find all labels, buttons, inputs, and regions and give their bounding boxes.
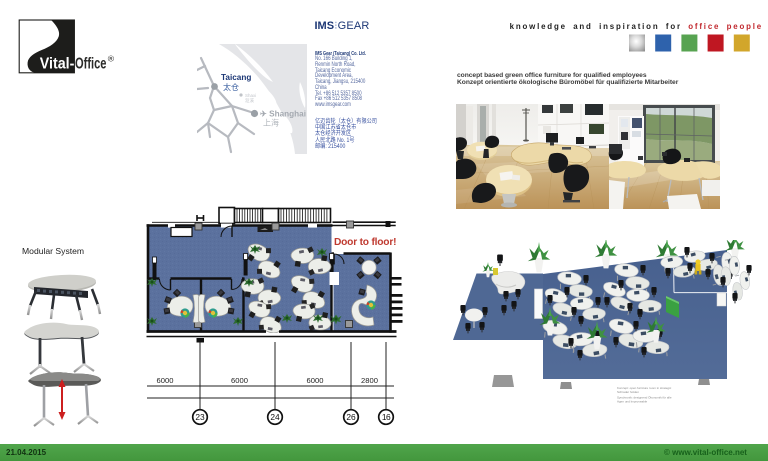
svg-text:太仓: 太仓 — [223, 82, 239, 92]
svg-text:上海: 上海 — [263, 118, 279, 128]
svg-text:6000: 6000 — [157, 376, 174, 385]
svg-text:✈ Shanghai: ✈ Shanghai — [260, 110, 306, 119]
svg-text:沤溪: 沤溪 — [245, 97, 254, 104]
svg-text:Agen und Improveable: Agen und Improveable — [617, 400, 648, 404]
svg-text:Office: Office — [75, 56, 107, 73]
svg-text:2800: 2800 — [361, 376, 378, 385]
svg-text:26: 26 — [346, 412, 356, 422]
svg-text:Taicang: Taicang — [221, 73, 251, 82]
svg-text:6000: 6000 — [307, 376, 324, 385]
svg-text:Vital-: Vital- — [40, 56, 75, 73]
svg-text:24: 24 — [270, 412, 280, 422]
svg-text:6000: 6000 — [231, 376, 248, 385]
svg-text:23: 23 — [195, 412, 205, 422]
svg-text:Schrader holden: Schrader holden — [617, 390, 639, 394]
svg-text:®: ® — [108, 54, 115, 64]
svg-text:16: 16 — [382, 412, 391, 422]
